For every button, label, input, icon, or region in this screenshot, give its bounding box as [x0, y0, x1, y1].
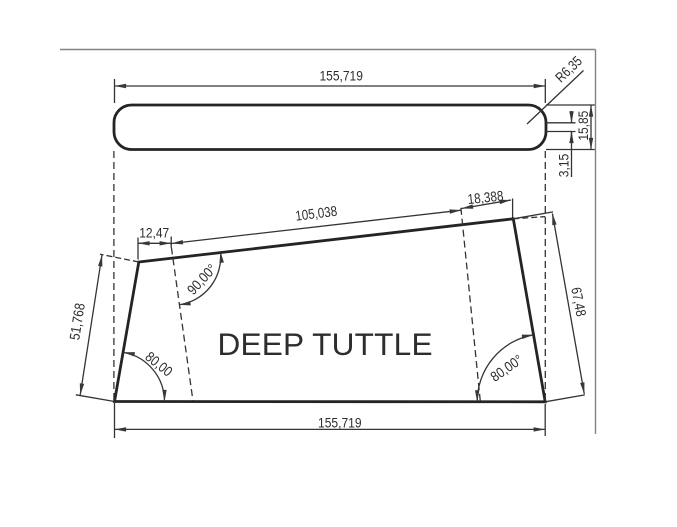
- svg-text:15,85: 15,85: [576, 111, 592, 141]
- svg-text:DEEP TUTTLE: DEEP TUTTLE: [218, 326, 433, 362]
- svg-text:3,15: 3,15: [557, 154, 573, 178]
- svg-text:12,47: 12,47: [139, 225, 169, 241]
- svg-text:155,719: 155,719: [318, 415, 362, 431]
- svg-text:155,719: 155,719: [319, 69, 363, 85]
